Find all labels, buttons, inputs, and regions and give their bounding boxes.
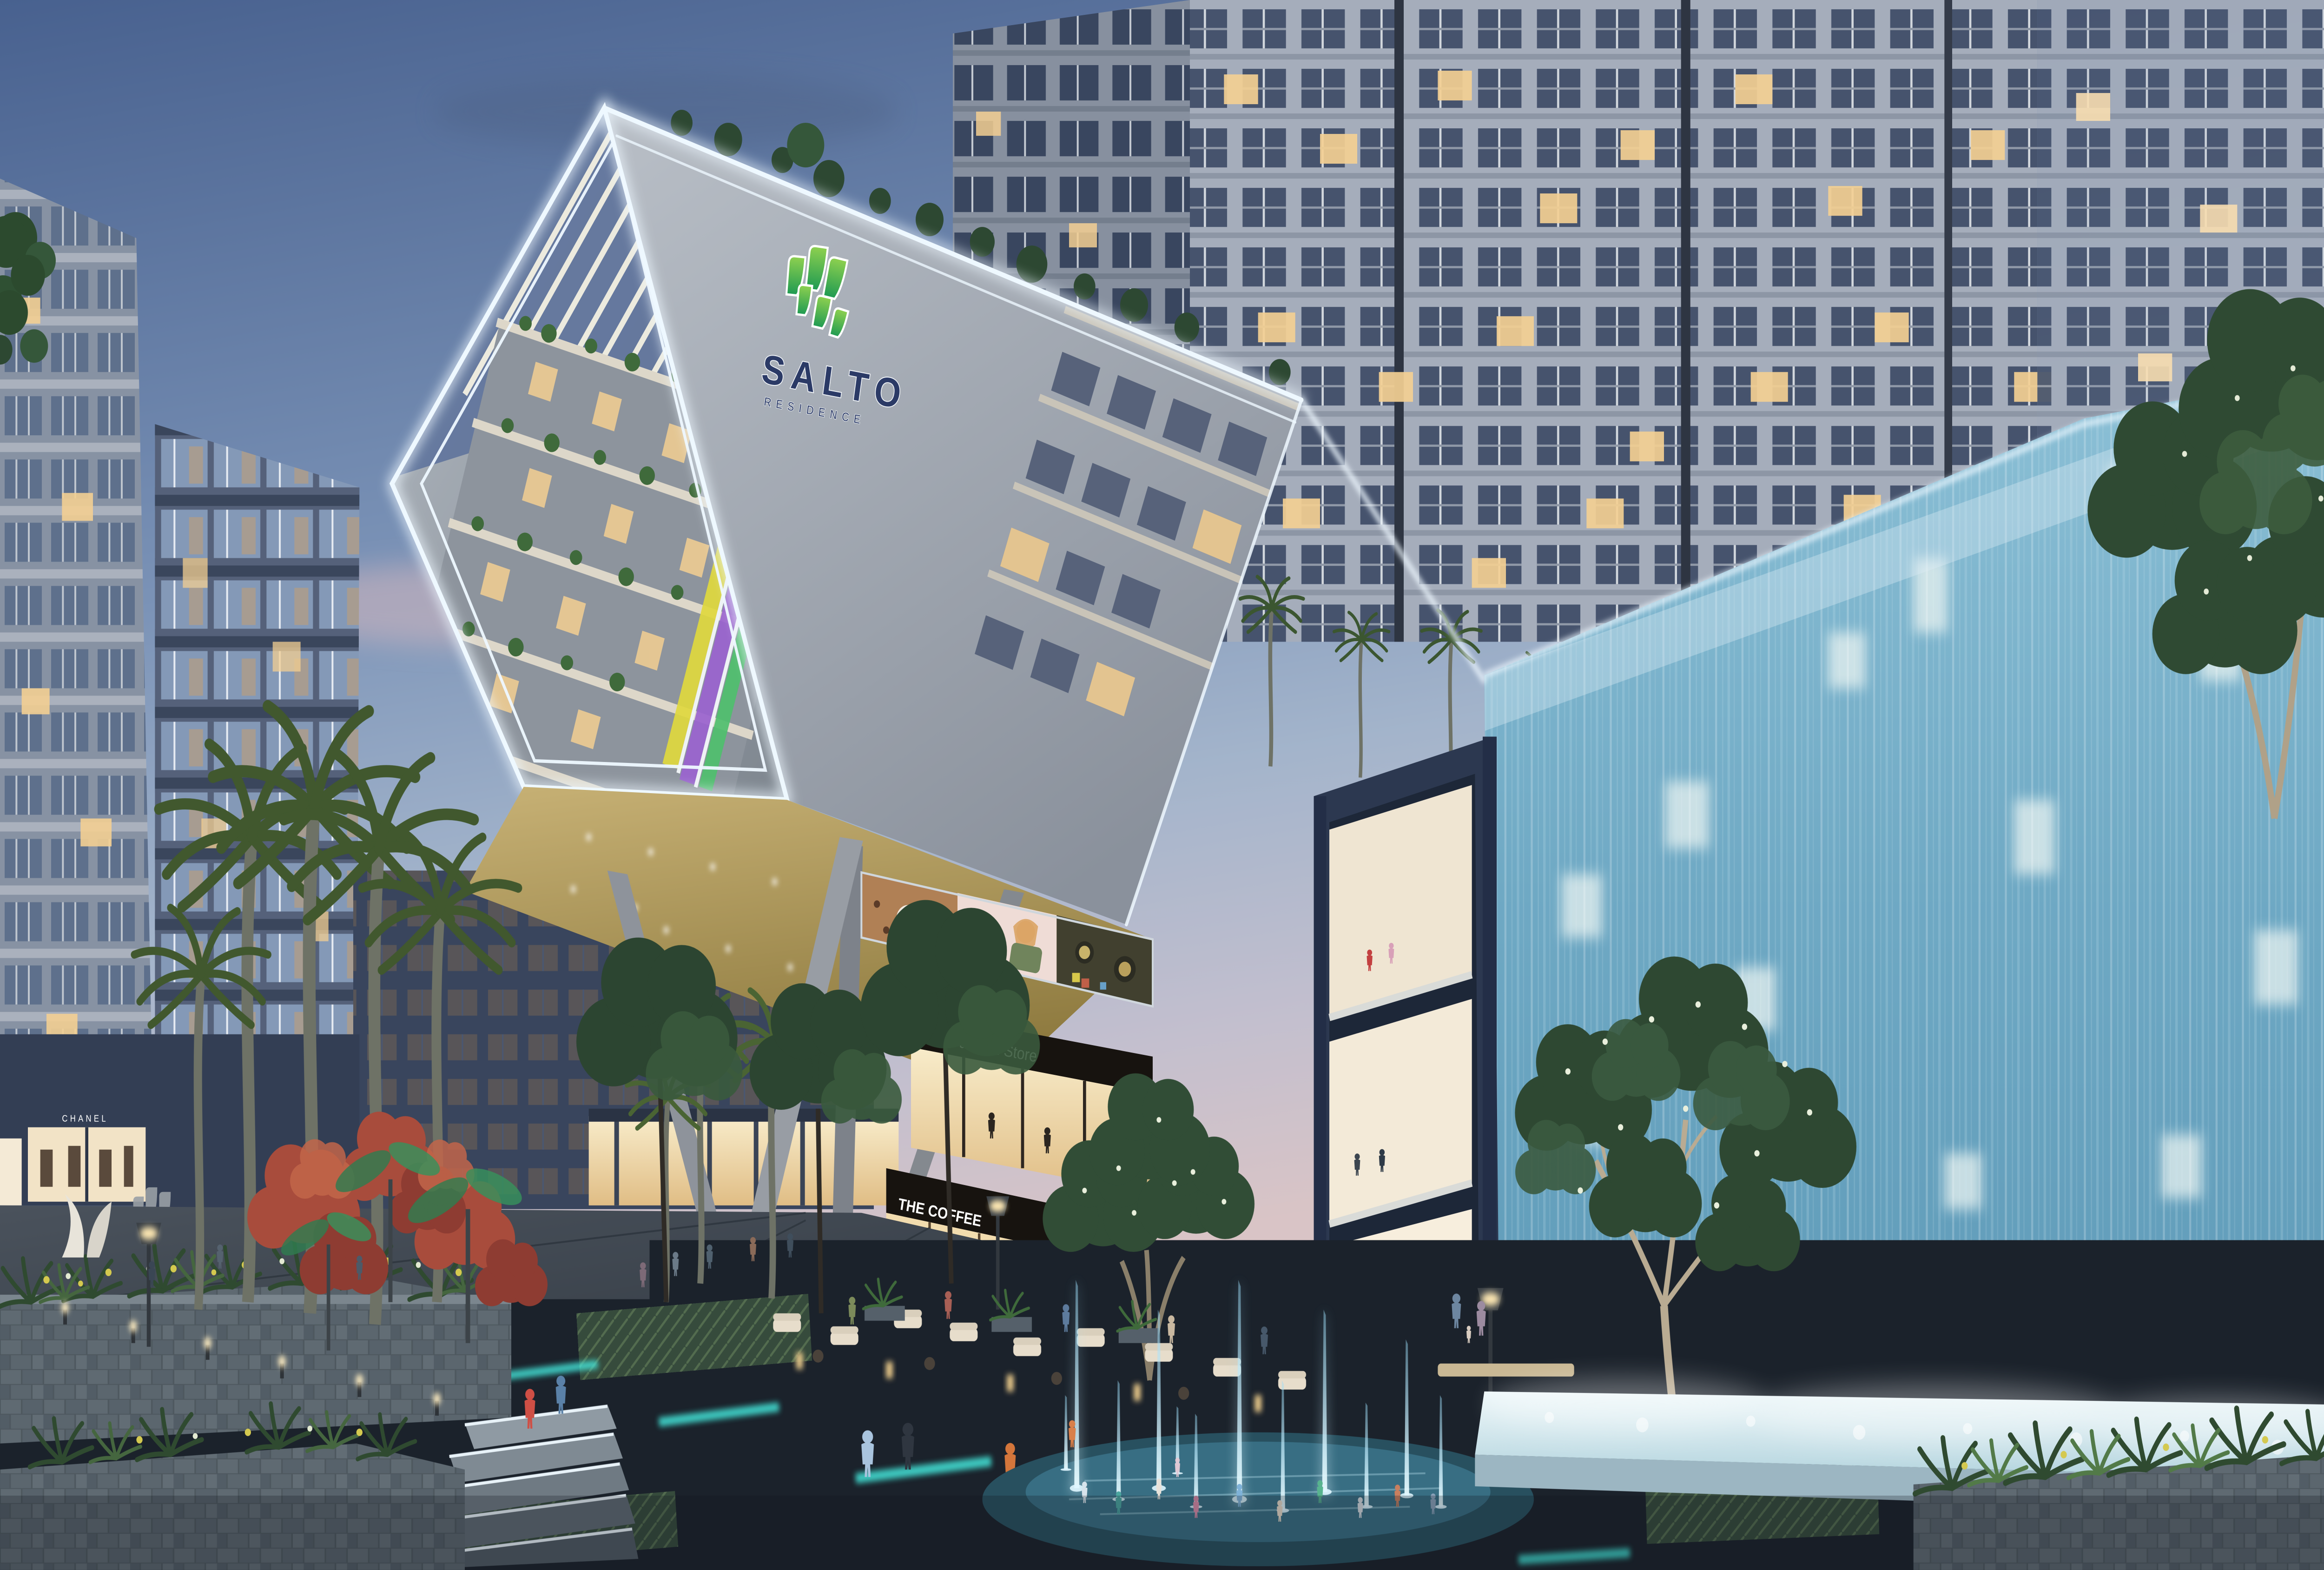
galleria-atrium	[1314, 736, 1500, 1398]
bench	[1438, 1364, 1574, 1377]
boutique-sign: CHANEL	[62, 1113, 108, 1124]
vignette	[0, 1496, 2324, 1570]
rendering-canvas: SALTO RESIDENCE	[0, 0, 2324, 1570]
scene-svg: SALTO RESIDENCE	[0, 0, 2324, 1570]
small-shop-window	[0, 1139, 22, 1206]
